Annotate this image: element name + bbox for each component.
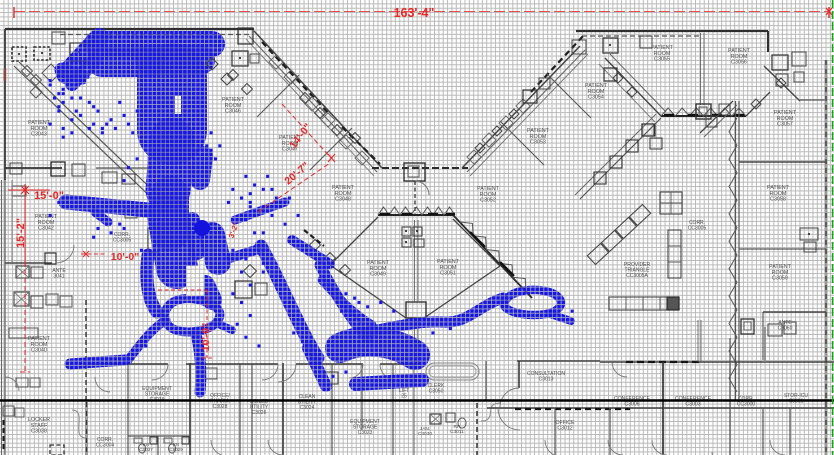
svg-text:OFFICEC3012: OFFICEC3012 — [555, 420, 575, 432]
svg-text:CORR.CC3005: CORR.CC3005 — [113, 232, 132, 243]
svg-text:PROVIDERTRIANGLECC3005A: PROVIDERTRIANGLECC3005A — [624, 262, 651, 279]
svg-text:15'-0": 15'-0" — [34, 190, 64, 202]
svg-text:CLEANUTILITYC3024: CLEANUTILITYC3024 — [298, 394, 317, 411]
svg-text:ANTE3041: ANTE3041 — [52, 268, 66, 279]
svg-text:CLERKC3050: CLERKC3050 — [428, 383, 445, 394]
svg-text:15'-2": 15'-2" — [15, 218, 27, 248]
svg-text:LOCKERSTAFFC3038: LOCKERSTAFFC3038 — [28, 417, 50, 435]
svg-text:163'-4": 163'-4" — [394, 6, 435, 20]
svg-text:CORR.CC3004: CORR.CC3004 — [96, 437, 115, 448]
svg-text:ANTEC3060: ANTEC3060 — [778, 320, 793, 331]
svg-text:10'-0": 10'-0" — [200, 323, 212, 352]
svg-text:10'-0": 10'-0" — [111, 251, 140, 263]
svg-text:CORR.CC3005: CORR.CC3005 — [688, 220, 707, 231]
